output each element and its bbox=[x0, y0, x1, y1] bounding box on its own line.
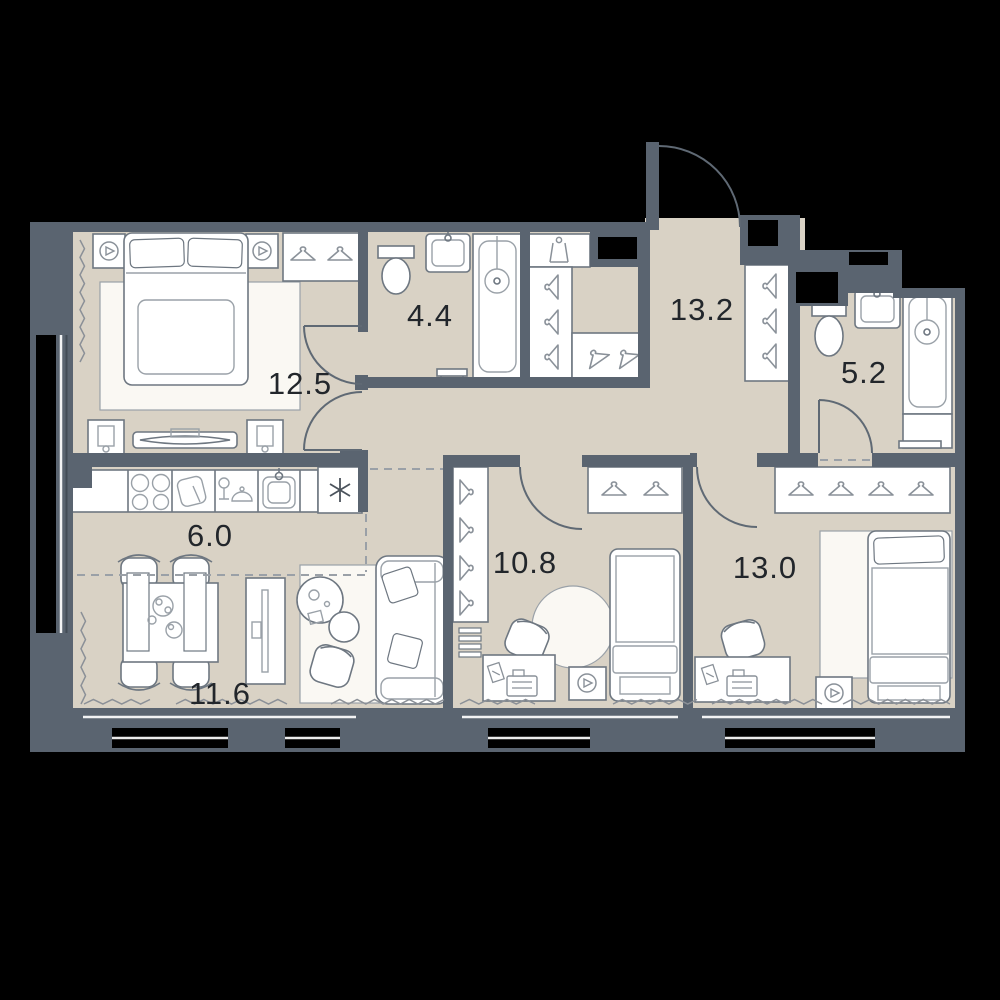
tv-console-icon bbox=[133, 432, 237, 448]
entrance-door-leaf bbox=[646, 142, 659, 230]
window-left bbox=[36, 335, 56, 633]
wall-hall-bottom bbox=[757, 453, 818, 467]
chair-seat bbox=[127, 573, 149, 651]
wall-bedroom2-bedroom3 bbox=[683, 467, 693, 708]
sofa-icon bbox=[376, 556, 449, 704]
toilet-tank bbox=[378, 246, 414, 258]
wall-kitchen-stub bbox=[358, 467, 368, 512]
wall-top-bathroom bbox=[893, 288, 965, 298]
pillow-icon bbox=[130, 238, 185, 268]
wall-hall-bottom bbox=[690, 453, 697, 467]
entrance-door-arc bbox=[659, 146, 740, 227]
room-label-bedroom-master: 12.5 bbox=[268, 366, 332, 401]
toilet-icon bbox=[815, 316, 843, 356]
wall-wardrobe-hall bbox=[638, 267, 650, 377]
wall-door-stub bbox=[355, 375, 368, 390]
wardrobe-top bbox=[588, 467, 682, 513]
shaft-cutout bbox=[849, 252, 888, 265]
wall-bedroom2-top bbox=[443, 455, 520, 467]
wall-bedroom-bath bbox=[358, 232, 368, 332]
speaker-box bbox=[246, 234, 278, 268]
room-label-bedroom-2: 10.8 bbox=[493, 545, 557, 580]
floor-plan-screenshot: 12.5 4.4 13.2 5.2 6.0 10.8 13.0 11.6 bbox=[0, 0, 1000, 1000]
speaker-box bbox=[93, 234, 125, 268]
wall-pilaster bbox=[72, 467, 92, 488]
chair-seat bbox=[184, 573, 206, 651]
wall-hall-bottom bbox=[872, 453, 955, 467]
bench-icon bbox=[437, 369, 467, 376]
wall-bath-wardrobe bbox=[520, 232, 530, 377]
double-bed-icon bbox=[868, 531, 950, 703]
shaft-cutout bbox=[796, 272, 838, 303]
furniture-kitchen bbox=[72, 467, 362, 513]
shaft-cutout bbox=[598, 237, 637, 259]
bench-icon bbox=[899, 441, 941, 448]
toilet-icon bbox=[382, 258, 410, 294]
pillow-icon bbox=[188, 238, 243, 268]
speaker-box bbox=[569, 667, 606, 700]
room-label-bedroom-3: 13.0 bbox=[733, 550, 797, 585]
nightstand-icon bbox=[88, 420, 124, 455]
nightstand-icon bbox=[247, 420, 283, 455]
shaft-cutout bbox=[748, 220, 778, 246]
room-label-living-room: 11.6 bbox=[189, 676, 251, 711]
floor-plan-canvas: 12.5 4.4 13.2 5.2 6.0 10.8 13.0 11.6 bbox=[0, 0, 1000, 1000]
wardrobe-top bbox=[775, 467, 950, 513]
wall-bedroom-kitchen bbox=[30, 453, 368, 467]
wall-living-bedroom2 bbox=[443, 455, 453, 708]
speaker-box bbox=[816, 677, 852, 710]
wall-bedroom2-top bbox=[582, 455, 690, 467]
wall-corridor-top bbox=[368, 377, 650, 388]
wall-right bbox=[955, 288, 965, 752]
room-label-hallway: 13.2 bbox=[670, 292, 734, 327]
room-label-bathroom: 5.2 bbox=[841, 355, 887, 390]
single-bed-icon bbox=[610, 549, 680, 701]
room-label-kitchen: 6.0 bbox=[187, 518, 233, 553]
room-label-bathroom-ensuite: 4.4 bbox=[407, 298, 453, 333]
wall-top bbox=[30, 222, 648, 232]
coffee-table-icon bbox=[329, 612, 359, 642]
